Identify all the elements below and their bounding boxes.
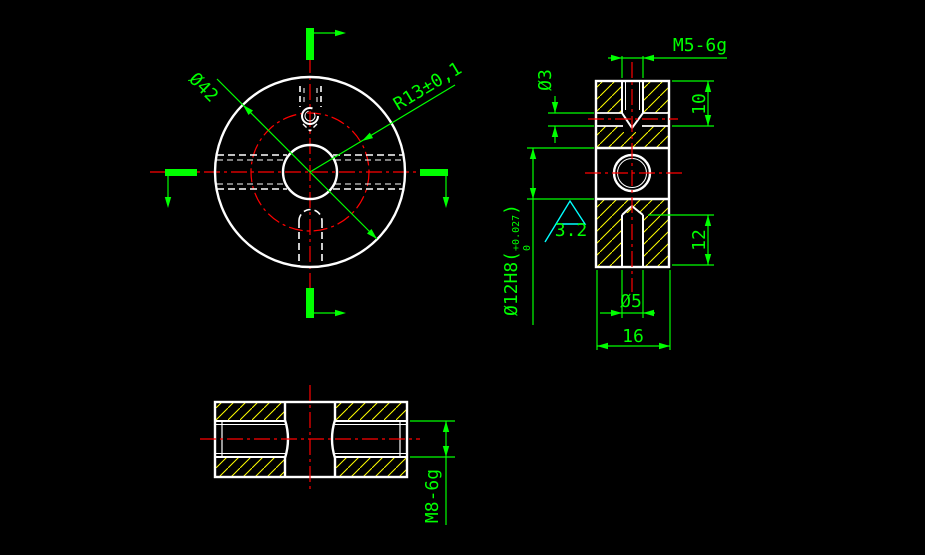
bore-fit-close: ) — [501, 204, 522, 215]
dim-label-m5-thread[interactable]: M5-6g — [673, 37, 727, 55]
bore-wall-right — [332, 402, 335, 477]
section-bar-top — [306, 28, 314, 60]
side-section-view[interactable] — [585, 62, 686, 292]
bottom-section-view[interactable] — [200, 385, 420, 492]
section-plane-markers — [165, 28, 449, 318]
dim-label-width[interactable]: 16 — [622, 328, 644, 346]
bore-tolerance-lower: 0 — [523, 245, 534, 251]
bore-fit-main: Ø12H8( — [501, 251, 522, 316]
dim-label-thread-depth[interactable]: 10 — [691, 93, 709, 115]
dim-label-cross-hole[interactable]: Ø3 — [537, 69, 555, 91]
dim-label-roughness[interactable]: 3.2 — [555, 222, 588, 240]
section-bar-bottom — [306, 288, 314, 318]
dim-label-bore-fit[interactable]: Ø12H8(+0.0270) — [503, 204, 533, 316]
dim-label-slot-dia[interactable]: Ø5 — [620, 293, 642, 311]
dim-label-m8-thread[interactable]: M8-6g — [424, 469, 442, 523]
section-bar-right — [420, 169, 448, 176]
dim-label-slot-depth[interactable]: 12 — [691, 229, 709, 251]
bore-tolerance-upper: +0.027 — [512, 215, 523, 251]
drawing-geometry — [0, 0, 925, 555]
section-bar-left — [165, 169, 197, 176]
cad-drawing-canvas[interactable]: Ø42 R13±0,1 M5-6g Ø3 10 Ø12H8(+0.0270) 3… — [0, 0, 925, 555]
dim-radius-13[interactable] — [310, 85, 455, 172]
